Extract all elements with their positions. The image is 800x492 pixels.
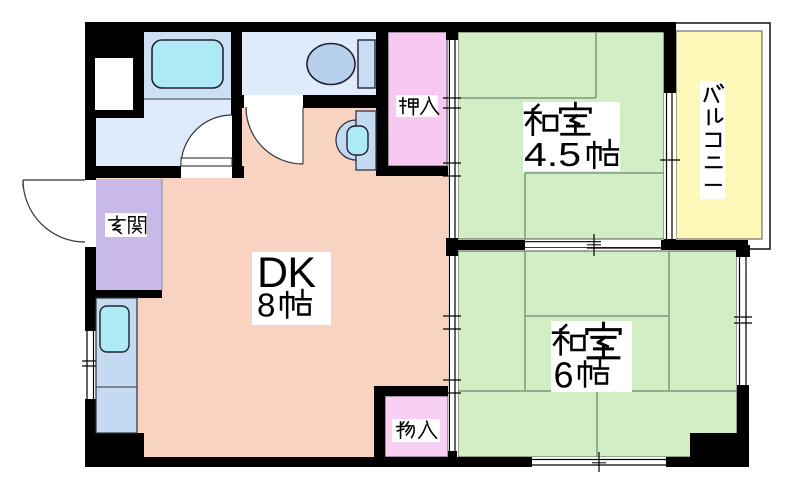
svg-text:6: 6 (554, 355, 574, 396)
svg-text:8: 8 (257, 287, 275, 324)
svg-text:4.5: 4.5 (524, 136, 581, 173)
